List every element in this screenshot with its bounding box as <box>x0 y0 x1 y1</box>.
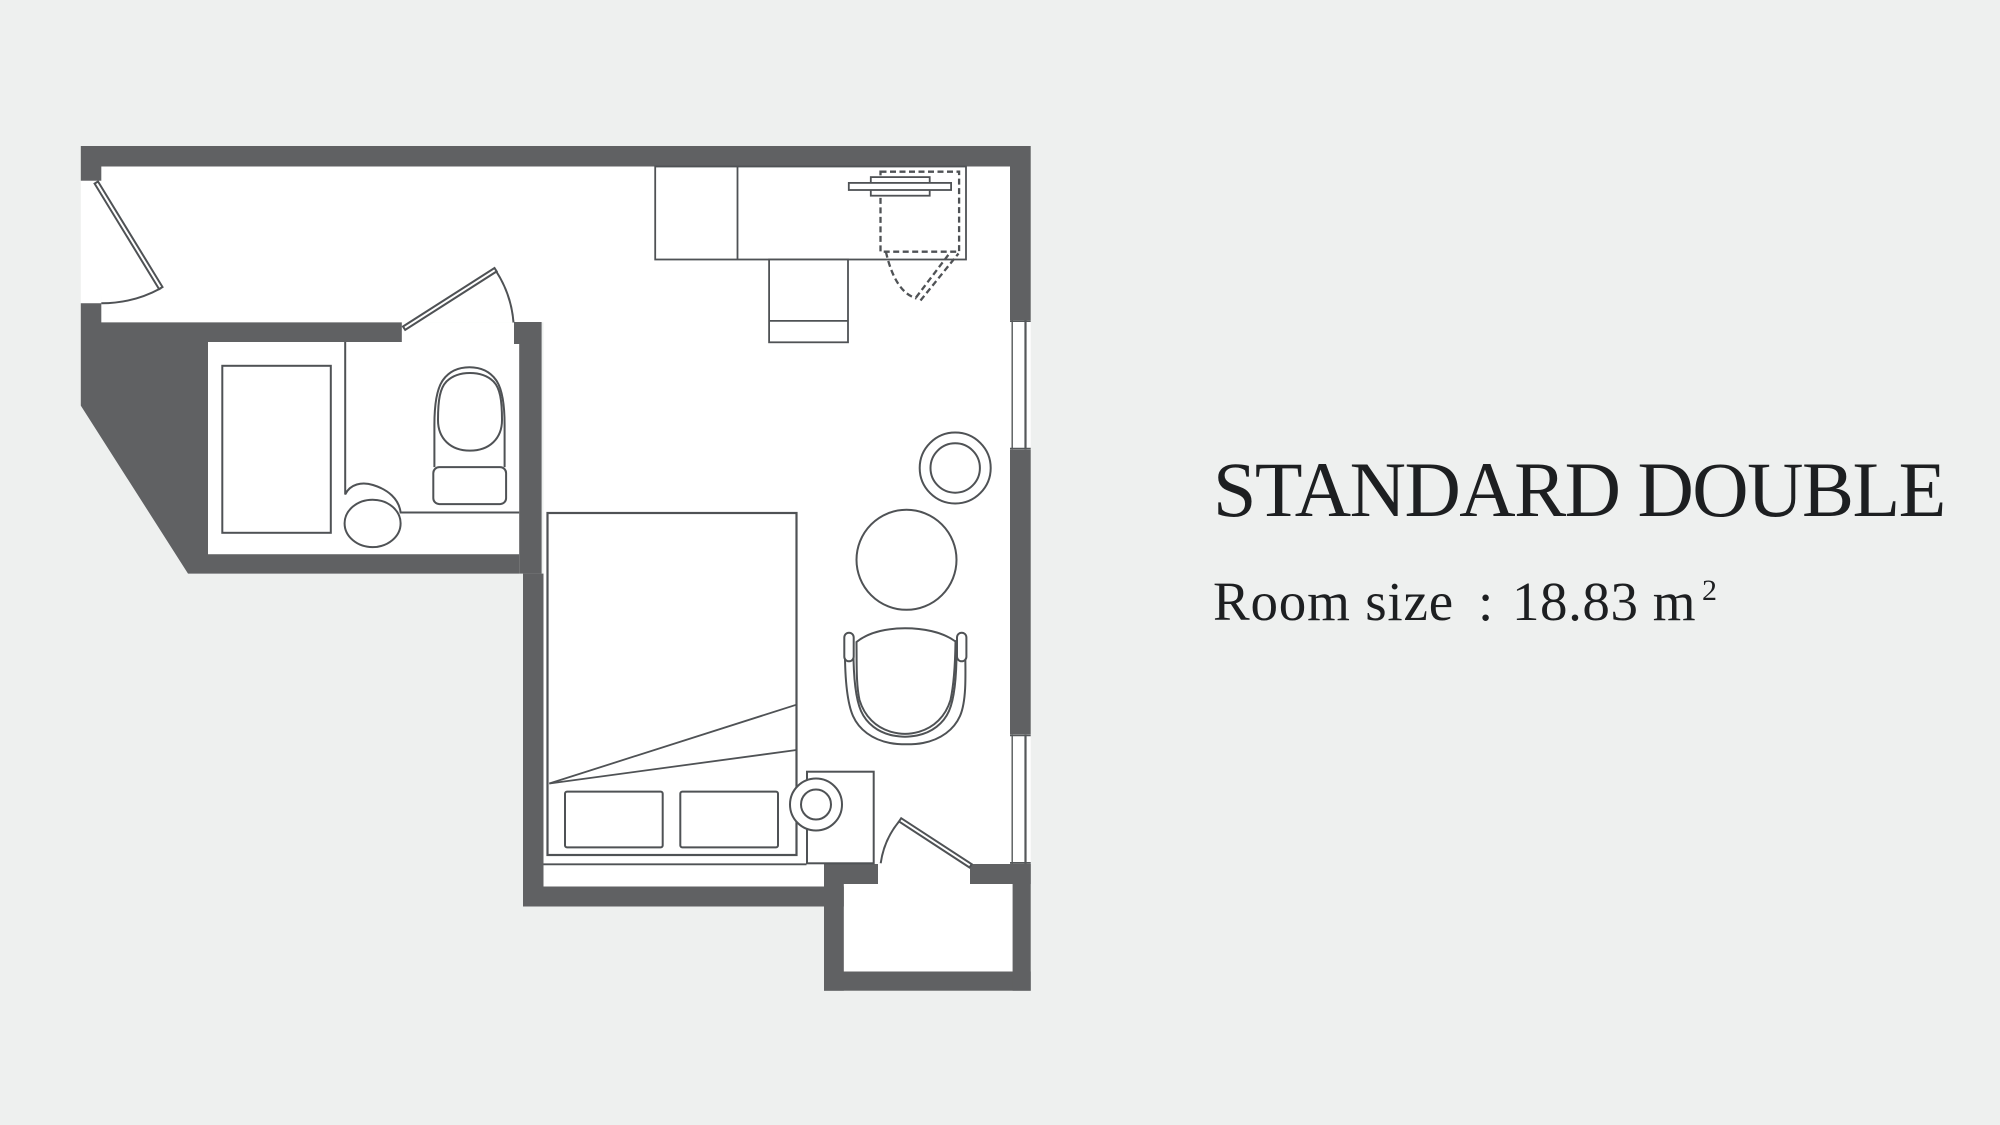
svg-text:2: 2 <box>1702 574 1717 607</box>
svg-text:Room size: Room size <box>1213 571 1454 632</box>
svg-text:18.83 m: 18.83 m <box>1512 571 1696 632</box>
svg-text::: : <box>1478 571 1493 632</box>
svg-text:STANDARD DOUBLE: STANDARD DOUBLE <box>1213 446 1945 533</box>
